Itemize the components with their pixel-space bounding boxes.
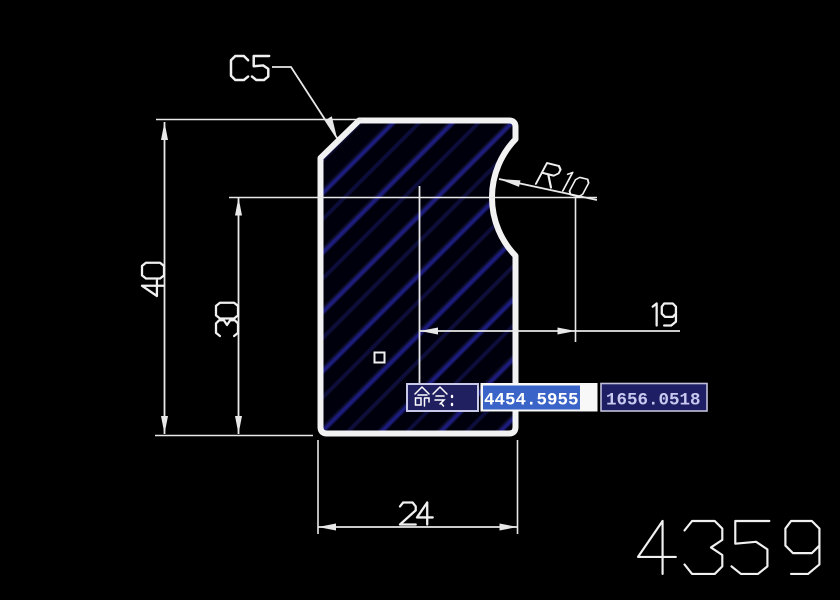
svg-text:1656.0518: 1656.0518	[606, 391, 701, 411]
svg-text:4454.5955: 4454.5955	[484, 391, 579, 411]
